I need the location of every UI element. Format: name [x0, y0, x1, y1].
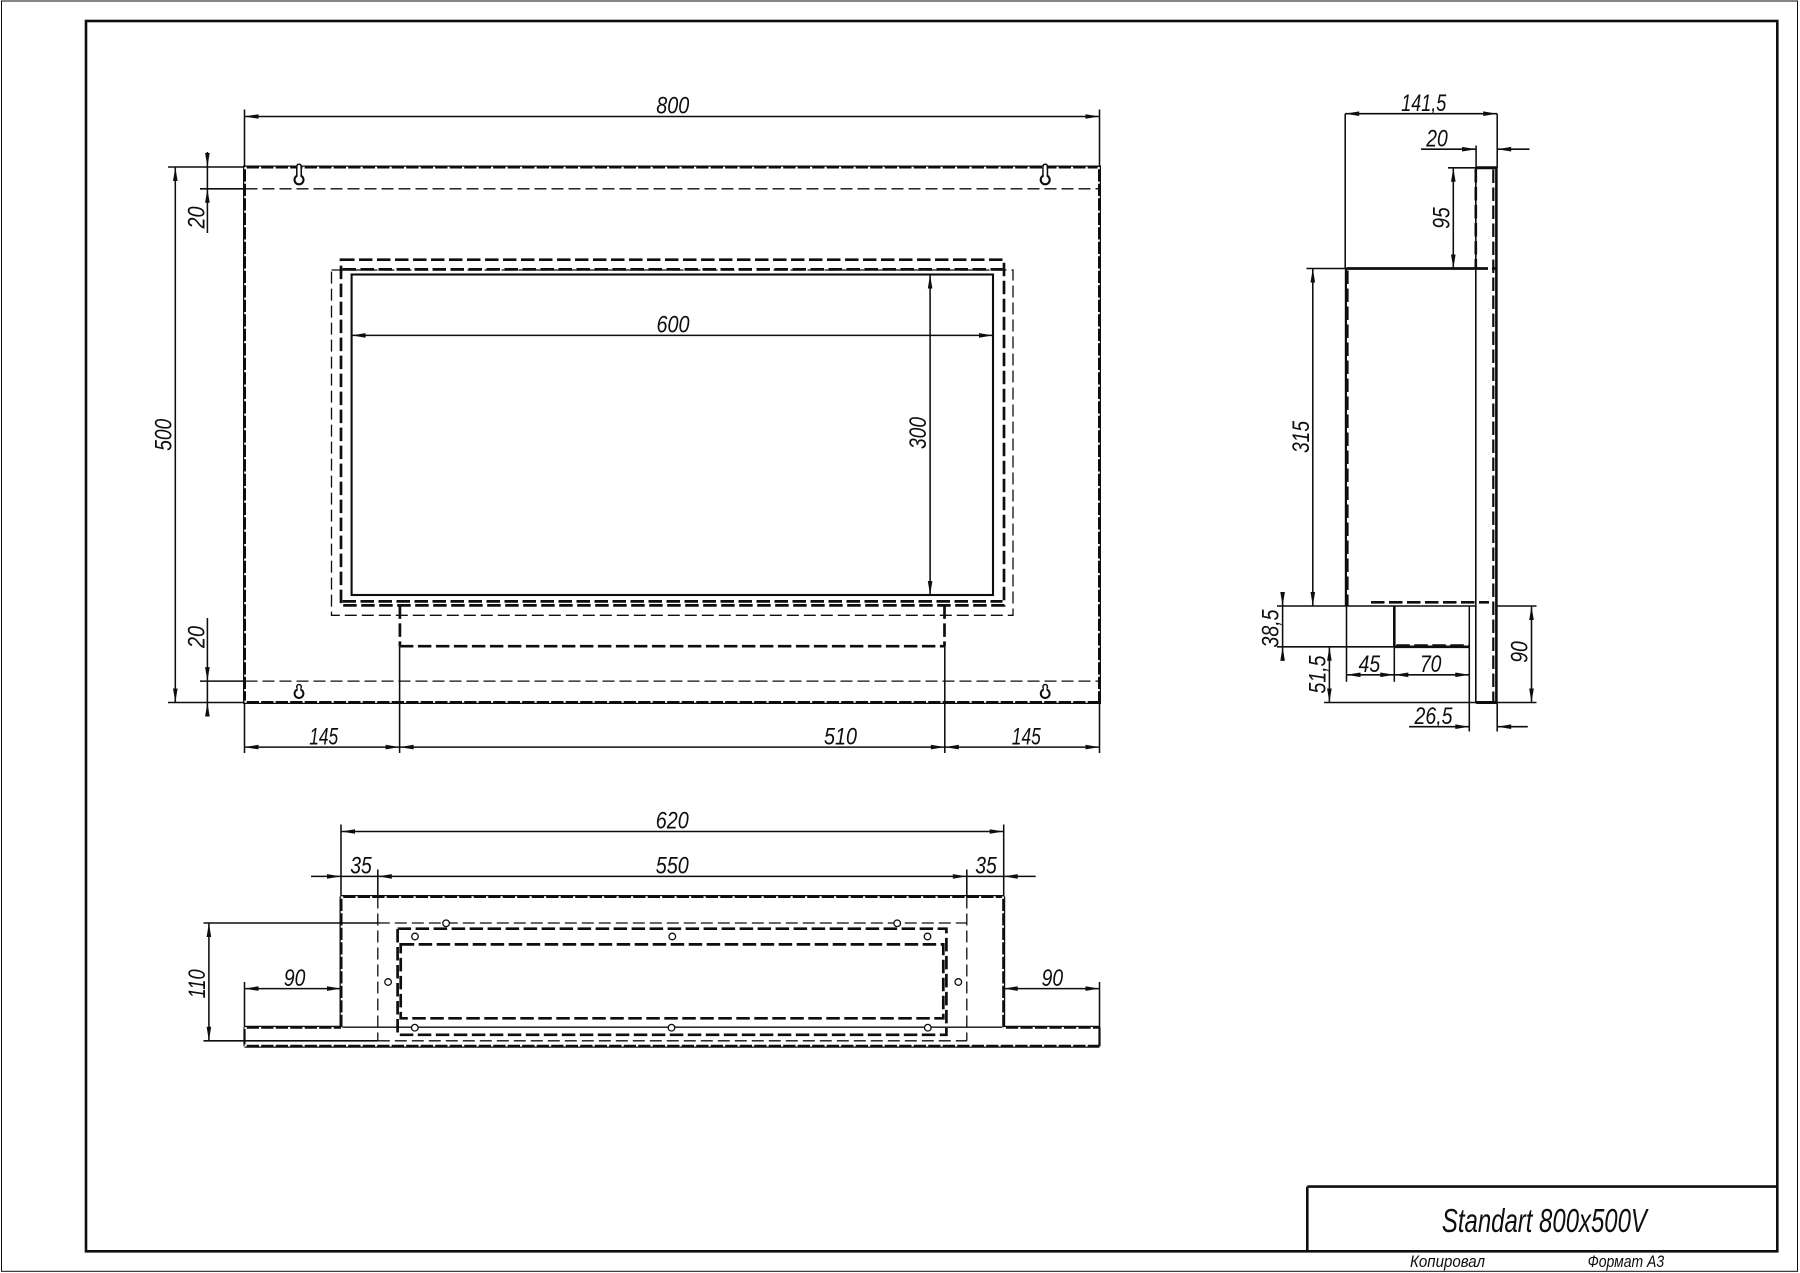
svg-text:315: 315 — [1288, 421, 1315, 453]
svg-text:Формат А3: Формат А3 — [1588, 1252, 1665, 1271]
svg-text:600: 600 — [657, 312, 690, 339]
svg-text:20: 20 — [184, 206, 211, 229]
svg-text:35: 35 — [975, 853, 997, 880]
svg-text:145: 145 — [1012, 723, 1041, 750]
svg-text:26,5: 26,5 — [1414, 703, 1453, 730]
svg-text:90: 90 — [1507, 641, 1534, 663]
svg-text:300: 300 — [905, 417, 932, 449]
svg-text:38,5: 38,5 — [1258, 609, 1285, 647]
svg-text:500: 500 — [150, 419, 177, 451]
svg-text:141,5: 141,5 — [1401, 90, 1446, 117]
svg-text:90: 90 — [284, 965, 306, 992]
svg-text:20: 20 — [1425, 125, 1448, 152]
svg-text:90: 90 — [1042, 965, 1064, 992]
svg-text:145: 145 — [309, 723, 338, 750]
svg-text:110: 110 — [184, 969, 211, 998]
svg-text:800: 800 — [656, 93, 689, 120]
svg-text:95: 95 — [1428, 207, 1455, 229]
svg-text:Копировал: Копировал — [1410, 1252, 1485, 1271]
svg-text:45: 45 — [1359, 651, 1381, 678]
svg-text:620: 620 — [656, 808, 689, 835]
svg-text:70: 70 — [1420, 651, 1442, 678]
svg-text:510: 510 — [824, 723, 857, 750]
svg-text:20: 20 — [184, 626, 211, 649]
svg-text:51,5: 51,5 — [1304, 655, 1331, 693]
svg-text:35: 35 — [350, 853, 372, 880]
svg-text:550: 550 — [656, 853, 689, 880]
svg-text:Standart 800x500V: Standart 800x500V — [1442, 1203, 1649, 1240]
